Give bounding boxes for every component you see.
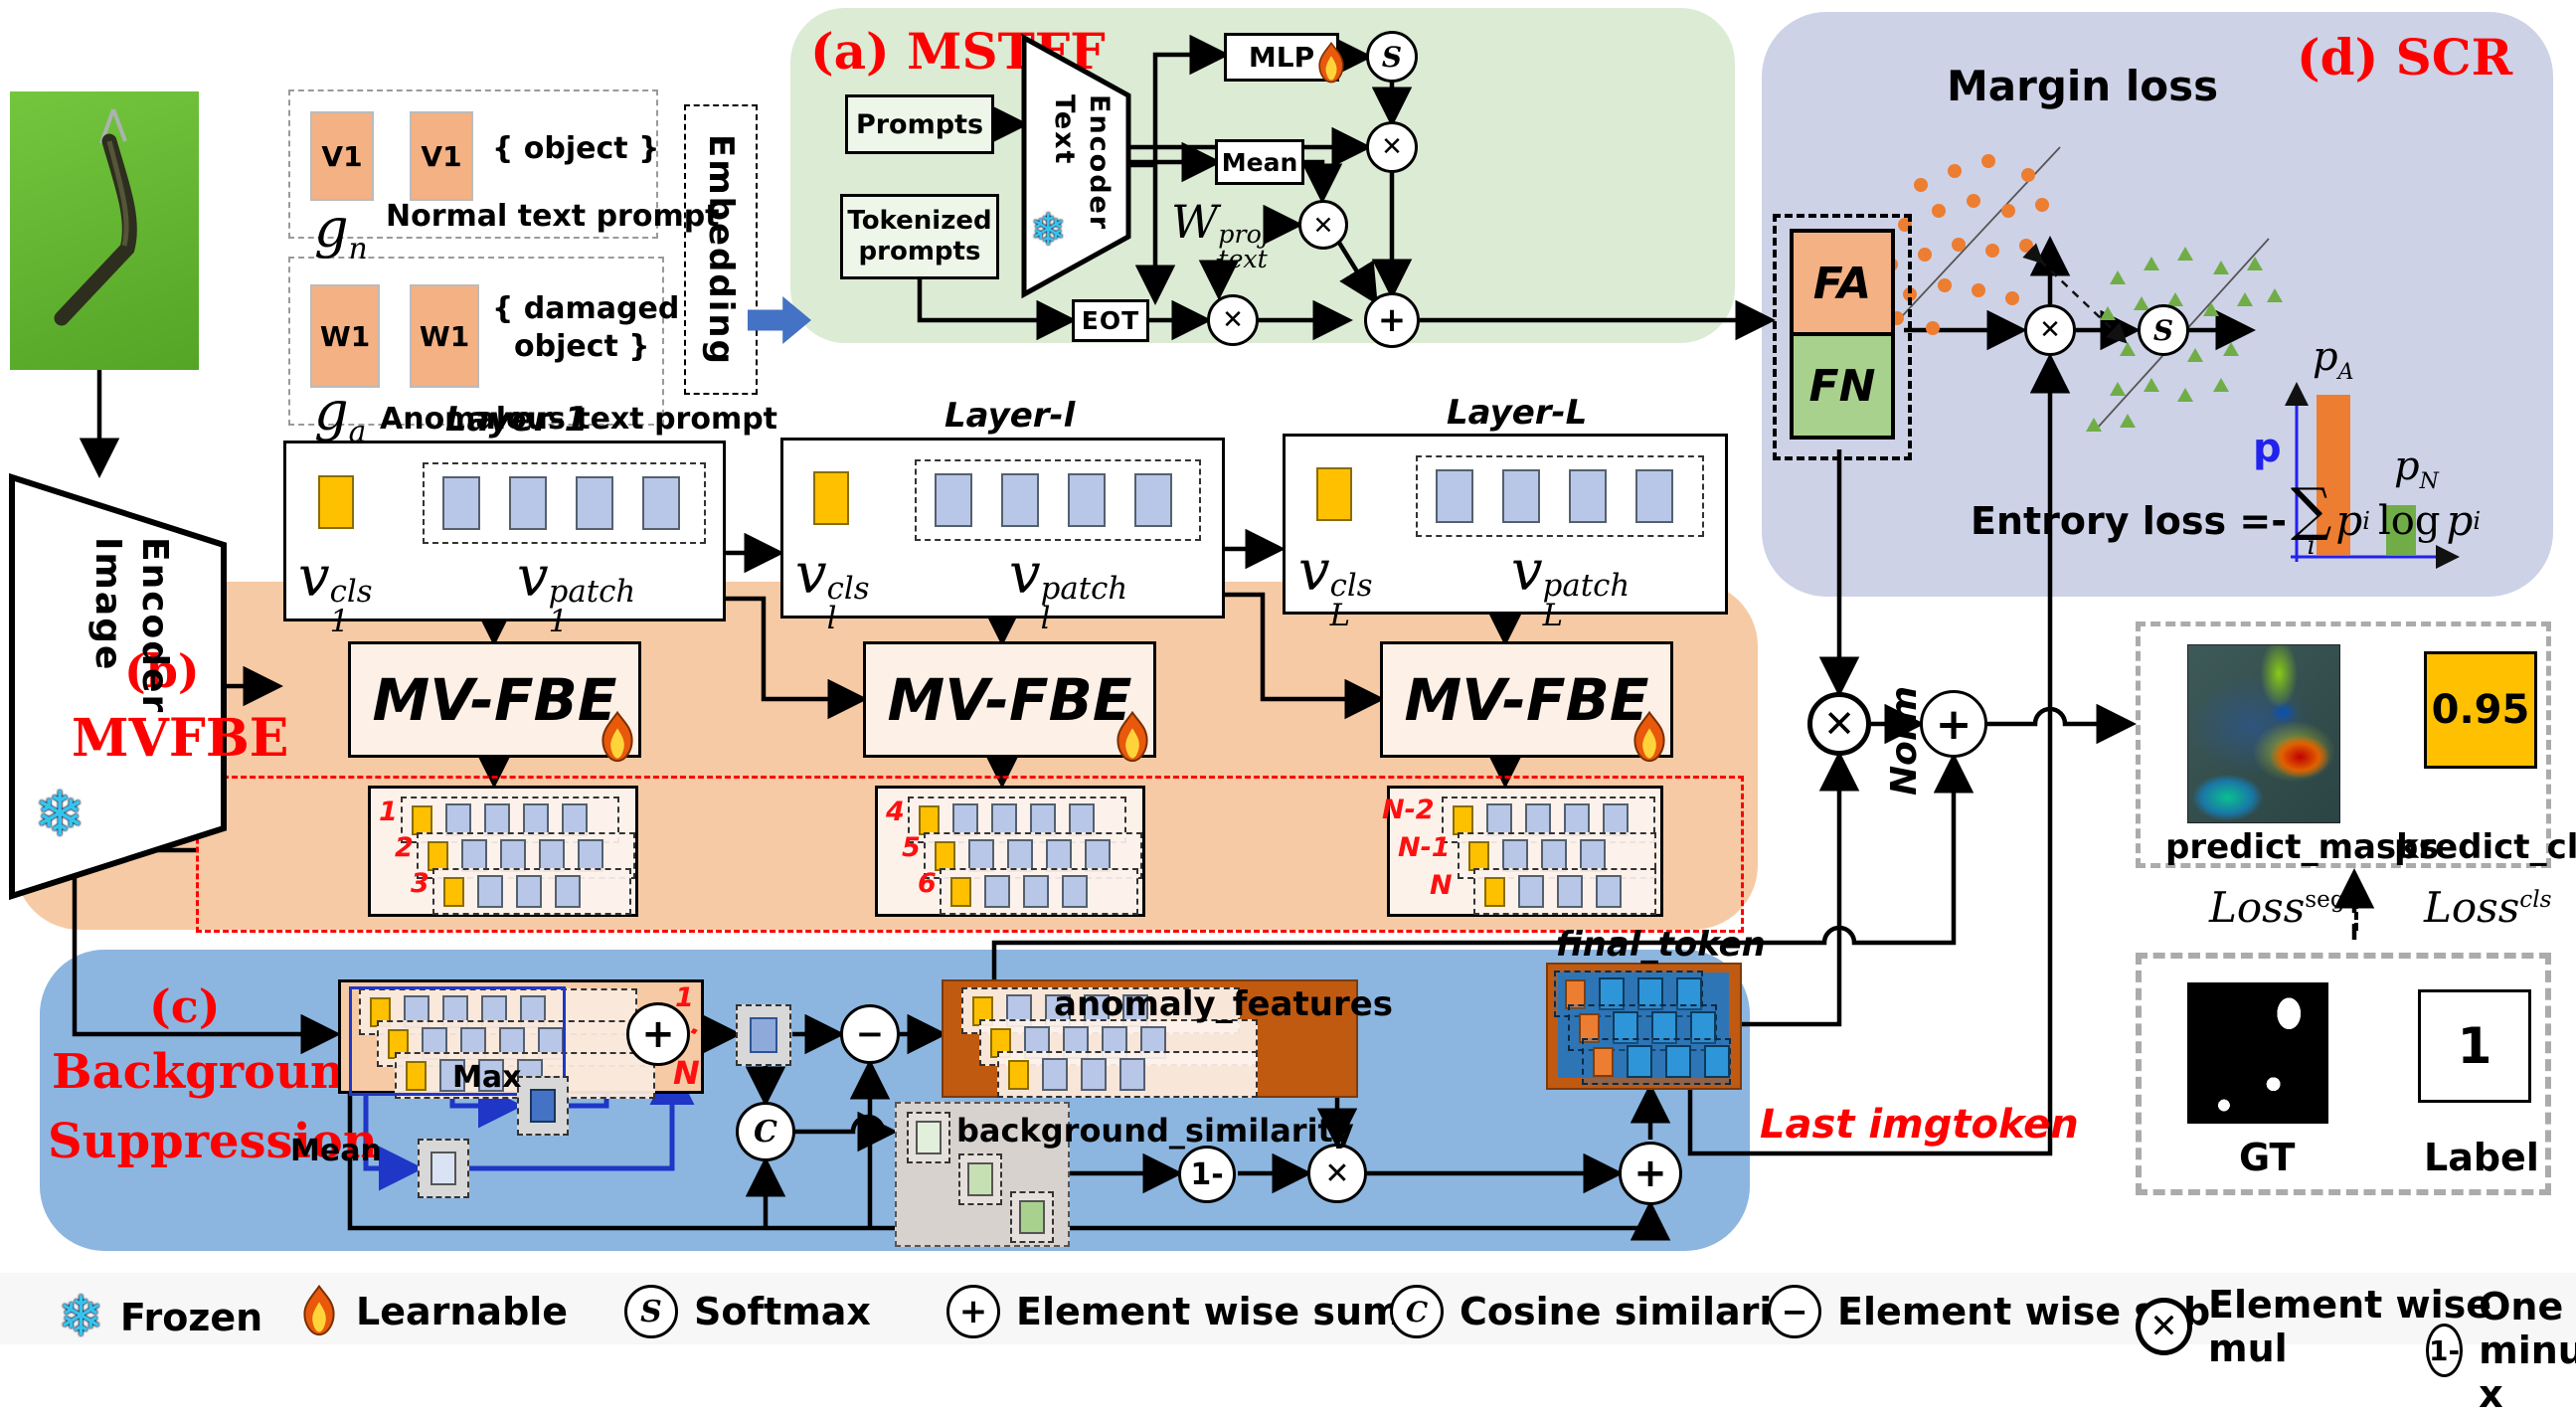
layerl-cls-math: vclsl bbox=[795, 542, 870, 634]
label-box: 1 bbox=[2418, 989, 2531, 1103]
mul-op-bs: ✕ bbox=[1307, 1144, 1367, 1203]
legend-one-minus: 1- One minus x bbox=[2426, 1285, 2576, 1416]
layerL-patch-token bbox=[1502, 469, 1540, 523]
object-placeholder: { object } bbox=[492, 131, 659, 166]
frozen-icon-image-encoder: ❄ bbox=[34, 778, 86, 850]
mul-op-mstff-1: ✕ bbox=[1366, 121, 1418, 173]
g-a-symbol: ga bbox=[314, 380, 366, 449]
layer1-patch-token bbox=[442, 476, 480, 530]
entropy-loss-formula: Entrory loss =- ∑ i p i log p i bbox=[1971, 483, 2481, 559]
v1-token-2: V1 bbox=[410, 111, 473, 201]
scr-title: (d) SCR bbox=[2297, 28, 2512, 87]
one-minus-icon: 1- bbox=[2426, 1324, 2463, 1377]
sum-op-final: + bbox=[1619, 1142, 1682, 1205]
max-token bbox=[517, 1076, 569, 1136]
mean-token bbox=[418, 1139, 469, 1198]
mul-op-mstff-3: ✕ bbox=[1207, 294, 1259, 346]
mul-op-mstff-2: ✕ bbox=[1298, 200, 1348, 250]
layer1-title: Layer-1 bbox=[445, 400, 588, 440]
w1-token-1: W1 bbox=[310, 284, 380, 388]
layerL-patch-math: vpatchL bbox=[1511, 539, 1630, 631]
mvfbe-stack-3: N-2 N-1 N bbox=[1387, 786, 1663, 917]
legend-sum: + Element wise sum bbox=[946, 1285, 1402, 1338]
query-image bbox=[10, 91, 199, 370]
layer1-cls-math: vcls1 bbox=[298, 545, 373, 637]
fn-box: FN bbox=[1790, 332, 1895, 440]
learnable-icon-mvfbe2 bbox=[1112, 711, 1153, 764]
layer1-patch-token bbox=[642, 476, 680, 530]
g-n-symbol: gn bbox=[314, 197, 368, 266]
final-token-box bbox=[1546, 963, 1742, 1090]
legend-learnable: Learnable bbox=[298, 1285, 568, 1337]
sum-icon: + bbox=[946, 1285, 1000, 1338]
mvfbe-title: MVFBE bbox=[72, 708, 288, 769]
v1-token-1: V1 bbox=[310, 111, 374, 201]
label-caption: Label bbox=[2424, 1136, 2539, 1179]
mvfbe-stack-1: 1 2 3 bbox=[368, 786, 638, 917]
combined-token bbox=[736, 1004, 791, 1066]
text-encoder-label-2: Encoder bbox=[1084, 94, 1115, 231]
predict-masks-image bbox=[2187, 644, 2340, 823]
prompts-box: Prompts bbox=[845, 94, 994, 154]
legend-softmax: S Softmax bbox=[624, 1285, 871, 1338]
layerL-patch-token bbox=[1569, 469, 1607, 523]
bs-title-1: Background bbox=[52, 1044, 378, 1100]
layerl-patch-math: vpatchl bbox=[1009, 542, 1127, 634]
damaged-placeholder: { damaged object } bbox=[492, 290, 679, 365]
eot-box: EOT bbox=[1072, 299, 1149, 342]
mul-icon: ✕ bbox=[2136, 1298, 2192, 1355]
loss-cls-label: Losscls bbox=[2424, 883, 2551, 932]
minus-icon: − bbox=[1768, 1285, 1821, 1338]
predict-cls-label: predict_cls bbox=[2394, 827, 2576, 867]
w1-token-2: W1 bbox=[410, 284, 479, 388]
layer1-patch-token bbox=[576, 476, 613, 530]
layer1-cls-token bbox=[318, 475, 354, 529]
sum-op-main: + bbox=[1920, 690, 1987, 758]
layer1-patch-math: vpatch1 bbox=[517, 545, 635, 637]
legend-frozen: ❄ Frozen bbox=[58, 1285, 262, 1349]
cos-op-bs: C bbox=[736, 1102, 795, 1161]
layerl-title: Layer-l bbox=[945, 396, 1075, 436]
cosine-icon: C bbox=[1390, 1285, 1444, 1338]
last-imgtoken-label: Last imgtoken bbox=[1760, 1102, 2079, 1148]
softmax-op-scr: S bbox=[2138, 304, 2189, 356]
learnable-icon-mvfbe1 bbox=[597, 711, 638, 764]
sum-op-bs: + bbox=[626, 1002, 690, 1066]
layerL-patch-token bbox=[1635, 469, 1673, 523]
one-minus-op-bs: 1- bbox=[1178, 1146, 1236, 1203]
layerL-cls-math: vclsL bbox=[1298, 539, 1373, 631]
final-token-label: final_token bbox=[1556, 925, 1766, 965]
flame-icon bbox=[298, 1285, 340, 1337]
image-encoder-label-1: Image bbox=[87, 537, 128, 714]
softmax-op-mstff: S bbox=[1366, 31, 1418, 83]
gt-label: GT bbox=[2239, 1136, 2295, 1179]
learnable-icon-mvfbe3 bbox=[1629, 711, 1670, 764]
p-axis-label: p bbox=[2253, 426, 2282, 471]
loss-seg-label: Lossseg bbox=[2209, 883, 2345, 932]
predict-cls-box: 0.95 bbox=[2424, 651, 2537, 769]
margin-loss-label: Margin loss bbox=[1947, 62, 2218, 110]
mvfbe-stack-2: 4 5 6 bbox=[875, 786, 1145, 917]
frozen-icon-text-encoder: ❄ bbox=[1030, 205, 1067, 256]
legend-cosine: C Cosine similarity bbox=[1390, 1285, 1814, 1338]
layerl-patch-token bbox=[1001, 473, 1039, 527]
mul-op-main: ✕ bbox=[1807, 692, 1871, 756]
layerl-patch-token bbox=[935, 473, 972, 527]
loss-divider bbox=[2354, 879, 2358, 931]
learnable-icon-mlp bbox=[1314, 42, 1348, 85]
bgsim-label: background_similarity bbox=[956, 1112, 1354, 1150]
gt-image bbox=[2187, 982, 2328, 1124]
norm-label: Norm bbox=[1884, 686, 1925, 796]
snowflake-icon: ❄ bbox=[58, 1285, 104, 1349]
layerL-patch-token bbox=[1436, 469, 1473, 523]
layerL-title: Layer-L bbox=[1447, 393, 1587, 433]
layerl-patch-token bbox=[1134, 473, 1172, 527]
bs-badge: (c) bbox=[149, 979, 221, 1033]
mean-label: Mean bbox=[290, 1134, 382, 1168]
embedding-label: Embedding bbox=[701, 134, 741, 366]
w-text-proj: Wprojtext bbox=[1171, 195, 1270, 271]
embedding-box: Embedding bbox=[684, 104, 758, 395]
mean-box: Mean bbox=[1215, 139, 1304, 185]
softmax-icon: S bbox=[624, 1285, 678, 1338]
tokenized-prompts-box: Tokenized prompts bbox=[840, 194, 999, 279]
layerL-cls-token bbox=[1316, 467, 1352, 521]
minus-op-bs: − bbox=[840, 1004, 900, 1064]
layerl-patch-token bbox=[1068, 473, 1106, 527]
image-encoder-label-2: Encoder bbox=[134, 537, 175, 714]
anomaly-features-label: anomaly_features bbox=[1054, 984, 1393, 1024]
max-label: Max bbox=[452, 1060, 521, 1095]
layer1-patch-token bbox=[509, 476, 547, 530]
sum-op-mstff: + bbox=[1364, 292, 1420, 348]
normal-prompt-caption: Normal text prompt bbox=[386, 199, 720, 234]
layerl-cls-token bbox=[813, 471, 849, 525]
pa-label: pA bbox=[2313, 334, 2354, 385]
arrow-sum-to-predict bbox=[1987, 709, 2128, 724]
mul-op-scr: ✕ bbox=[2024, 304, 2076, 356]
fa-box: FA bbox=[1790, 229, 1895, 338]
